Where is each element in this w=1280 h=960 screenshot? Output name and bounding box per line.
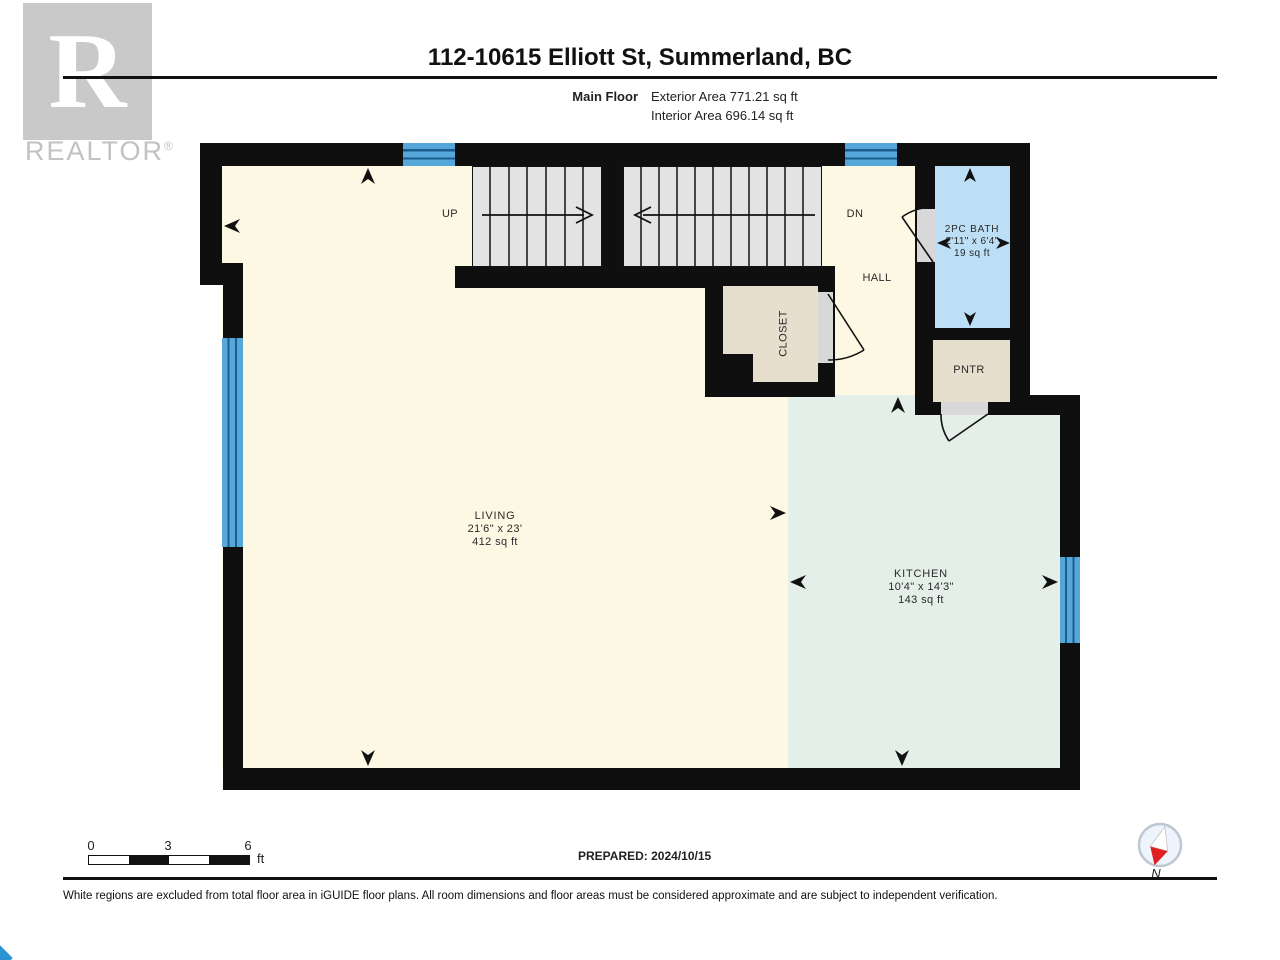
- prepared-date: PREPARED: 2024/10/15: [578, 849, 711, 863]
- floorplan-page: R REALTOR® 112-10615 Elliott St, Summerl…: [0, 0, 1280, 960]
- label-kitchen: KITCHEN 10'4" x 14'3" 143 sq ft: [888, 568, 954, 607]
- bath-dims: 2'11" x 6'4": [945, 236, 1000, 248]
- disclaimer-text: White regions are excluded from total fl…: [63, 890, 1183, 902]
- label-stairs-up: UP: [442, 208, 458, 221]
- scale-seg-4: [209, 856, 249, 864]
- stair-treads-down: [641, 166, 803, 266]
- bath-name: 2PC BATH: [945, 224, 1000, 236]
- scale-bar: [88, 855, 250, 865]
- scale-tick-3: 3: [161, 838, 175, 853]
- plan-linework: [0, 0, 1280, 960]
- scale-unit: ft: [257, 851, 264, 866]
- stair-arrow-up: [482, 207, 592, 223]
- label-hall: HALL: [862, 272, 891, 285]
- scale-tick-0: 0: [84, 838, 98, 853]
- bath-area: 19 sq ft: [945, 248, 1000, 260]
- stair-treads-up: [490, 166, 583, 266]
- label-closet: CLOSET: [778, 310, 791, 356]
- footer-divider: [63, 877, 1217, 880]
- living-area: 412 sq ft: [468, 536, 523, 549]
- scale-tick-6: 6: [241, 838, 255, 853]
- door-pantry: [941, 414, 988, 441]
- scale-seg-1: [89, 856, 129, 864]
- kitchen-dims: 10'4" x 14'3": [888, 581, 954, 594]
- living-name: LIVING: [468, 510, 523, 523]
- stair-arrow-down: [635, 207, 815, 223]
- label-pantry: PNTR: [953, 364, 985, 377]
- kitchen-area: 143 sq ft: [888, 594, 954, 607]
- compass-icon: [1139, 824, 1181, 868]
- label-stairs-down: DN: [847, 208, 864, 221]
- kitchen-name: KITCHEN: [888, 568, 954, 581]
- door-closet: [828, 294, 864, 360]
- living-dims: 21'6" x 23': [468, 523, 523, 536]
- label-living: LIVING 21'6" x 23' 412 sq ft: [468, 510, 523, 549]
- door-bath: [902, 207, 933, 262]
- label-bath: 2PC BATH 2'11" x 6'4" 19 sq ft: [945, 224, 1000, 260]
- scale-seg-3: [169, 856, 209, 864]
- scale-seg-2: [129, 856, 169, 864]
